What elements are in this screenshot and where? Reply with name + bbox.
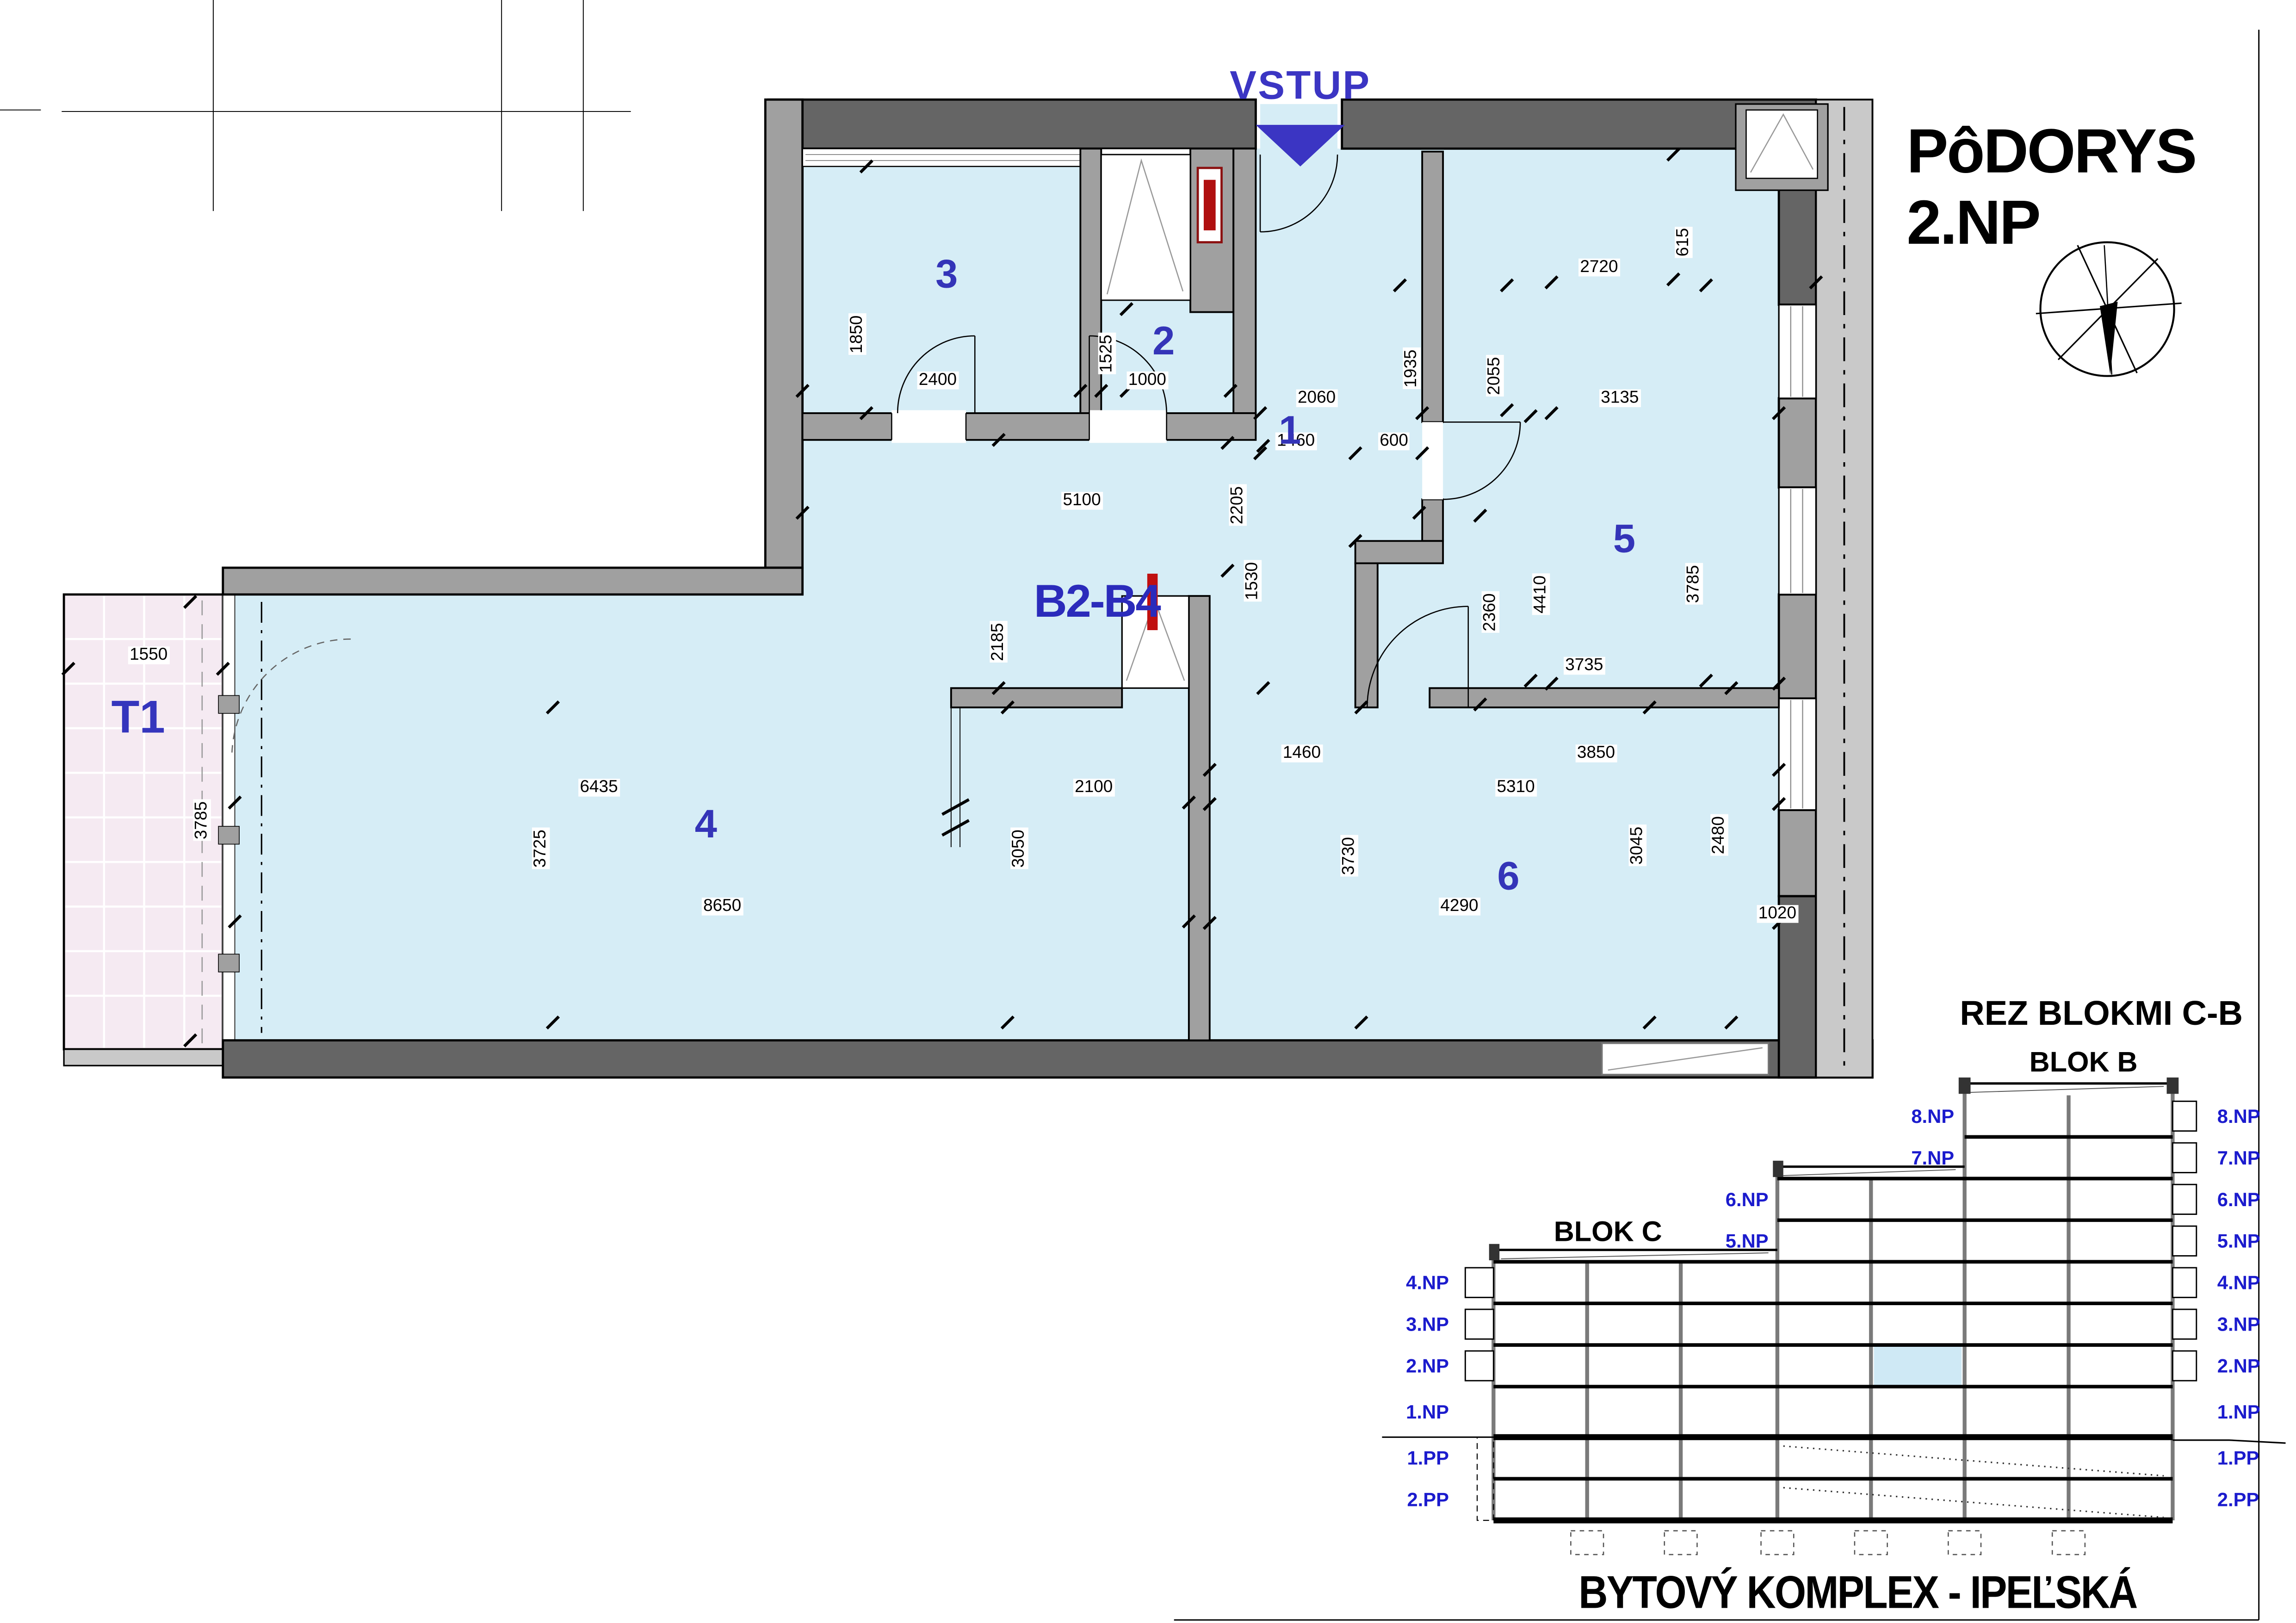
level-label: 4.NP <box>2217 1271 2260 1294</box>
level-label: 1.PP <box>2217 1447 2259 1469</box>
level-label: 3.NP <box>1406 1313 1449 1335</box>
level-label: 6.NP <box>1726 1188 1769 1210</box>
level-label: 1.NP <box>1406 1401 1449 1423</box>
dimension-label: 2100 <box>1073 779 1114 797</box>
dimension-label: 5310 <box>1495 779 1536 797</box>
dimension-label: 1550 <box>128 646 169 664</box>
dimension-label: 6435 <box>578 779 619 797</box>
dimension-label: 2720 <box>1578 259 1620 277</box>
dimension-label: 1530 <box>1244 561 1262 602</box>
room-number-label: 6 <box>1497 854 1519 900</box>
room-number-label: 2 <box>1152 319 1175 365</box>
level-label: 2.NP <box>1406 1355 1449 1377</box>
level-label: 1.PP <box>1407 1447 1449 1469</box>
dimension-label: 8650 <box>702 898 743 916</box>
dimension-label: 3785 <box>1685 564 1703 605</box>
level-label: 2.PP <box>2217 1488 2259 1511</box>
level-label: 5.NP <box>2217 1230 2260 1252</box>
dimension-label: 2360 <box>1482 592 1500 633</box>
level-label: 4.NP <box>1406 1271 1449 1294</box>
dimension-label: 4290 <box>1439 898 1480 916</box>
level-label: 2.PP <box>1407 1488 1449 1511</box>
level-label: 6.NP <box>2217 1188 2260 1210</box>
dimension-label: 3050 <box>1010 828 1028 869</box>
dimension-label: 5100 <box>1061 492 1102 510</box>
dimension-label: 1850 <box>848 314 866 355</box>
dimension-label: 2060 <box>1296 390 1337 408</box>
drawing-sheet: PôDORYS 2.NP VSTUP B2-B4 T1 REZ BLOKMI C… <box>0 0 2296 1623</box>
level-label: 7.NP <box>1911 1146 1954 1169</box>
generated-labels: 1850240015251000510022052185153020601935… <box>0 0 2296 1623</box>
dimension-label: 2480 <box>1710 815 1728 856</box>
room-number-label: 3 <box>935 252 958 298</box>
level-label: 5.NP <box>1726 1230 1769 1252</box>
level-label: 1.NP <box>2217 1401 2260 1423</box>
level-label: 7.NP <box>2217 1146 2260 1169</box>
dimension-label: 600 <box>1378 433 1410 451</box>
dimension-label: 3725 <box>532 828 550 869</box>
page: PôDORYS 2.NP VSTUP B2-B4 T1 REZ BLOKMI C… <box>0 0 2296 1623</box>
dimension-label: 3730 <box>1340 836 1358 877</box>
level-label: 2.NP <box>2217 1355 2260 1377</box>
dimension-label: 1525 <box>1098 333 1116 374</box>
level-label: 8.NP <box>2217 1105 2260 1127</box>
dimension-label: 3045 <box>1629 825 1647 866</box>
level-label: 8.NP <box>1911 1105 1954 1127</box>
room-number-label: 1 <box>1279 408 1301 454</box>
dimension-label: 3850 <box>1576 744 1617 762</box>
dimension-label: 1020 <box>1757 905 1798 923</box>
room-number-label: 5 <box>1613 516 1635 563</box>
dimension-label: 1460 <box>1281 744 1323 762</box>
level-label: 3.NP <box>2217 1313 2260 1335</box>
dimension-label: 3735 <box>1564 657 1605 675</box>
dimension-label: 1935 <box>1403 348 1421 389</box>
dimension-label: 3135 <box>1599 390 1640 408</box>
dimension-label: 2055 <box>1486 355 1504 396</box>
room-number-label: 4 <box>695 802 717 848</box>
dimension-label: 2400 <box>917 372 959 390</box>
dimension-label: 2205 <box>1229 485 1247 526</box>
dimension-label: 1000 <box>1127 372 1168 390</box>
dimension-label: 4410 <box>1532 574 1550 615</box>
dimension-label: 2185 <box>990 621 1008 663</box>
dimension-label: 615 <box>1675 227 1693 258</box>
dimension-label: 3785 <box>193 800 211 841</box>
